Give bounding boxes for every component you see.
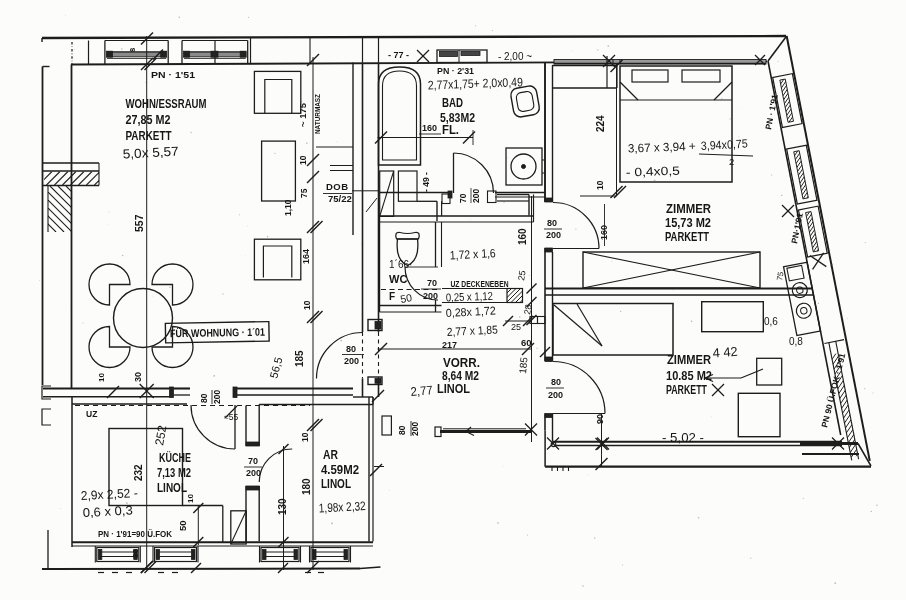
svg-text:75/22: 75/22 xyxy=(328,193,352,204)
svg-text:90: 90 xyxy=(595,414,605,424)
svg-text:3,94x0,75: 3,94x0,75 xyxy=(700,137,748,153)
svg-text:0,8: 0,8 xyxy=(789,336,803,347)
svg-text:164: 164 xyxy=(301,249,311,264)
svg-text:- 0,4x0,5: - 0,4x0,5 xyxy=(626,164,681,180)
svg-text:200: 200 xyxy=(546,230,561,240)
svg-text:FL.: FL. xyxy=(442,123,459,137)
svg-text:160: 160 xyxy=(422,123,437,133)
svg-text:WOHN/ESSRAUM: WOHN/ESSRAUM xyxy=(126,97,207,111)
svg-text:LINOL: LINOL xyxy=(157,481,187,495)
svg-text:10: 10 xyxy=(97,373,106,382)
svg-text:27,85 M2: 27,85 M2 xyxy=(126,113,171,127)
svg-text:LINOL: LINOL xyxy=(321,477,351,491)
svg-text:8,64 M2: 8,64 M2 xyxy=(442,369,479,383)
svg-text:ZIMMER: ZIMMER xyxy=(667,353,711,367)
svg-text:80: 80 xyxy=(199,393,209,403)
svg-text:ZIMMER: ZIMMER xyxy=(666,202,711,216)
svg-text:DOB: DOB xyxy=(326,181,349,192)
svg-text:2,77 x 1,85: 2,77 x 1,85 xyxy=(446,323,498,338)
svg-text:130: 130 xyxy=(277,498,288,515)
svg-text:PARKETT: PARKETT xyxy=(665,230,709,244)
svg-text:70: 70 xyxy=(248,456,258,466)
svg-text:FÜR WOHNUNG · 1´01: FÜR WOHNUNG · 1´01 xyxy=(170,326,265,340)
svg-text:PN · 1'51: PN · 1'51 xyxy=(151,70,195,80)
svg-text:200: 200 xyxy=(423,291,438,301)
svg-text:30: 30 xyxy=(131,549,140,558)
svg-text:2: 2 xyxy=(729,156,734,167)
svg-text:UZ: UZ xyxy=(86,409,97,419)
svg-text:30: 30 xyxy=(133,372,143,382)
svg-text:0,6 x 0,3: 0,6 x 0,3 xyxy=(82,503,133,520)
svg-text:80: 80 xyxy=(551,377,561,387)
svg-text:200: 200 xyxy=(212,390,222,404)
svg-text:75: 75 xyxy=(299,188,309,198)
svg-text:217: 217 xyxy=(442,340,457,350)
svg-text:10: 10 xyxy=(595,180,605,190)
svg-text:15,73 M2: 15,73 M2 xyxy=(665,216,711,230)
svg-text:185: 185 xyxy=(294,350,305,367)
svg-text:80: 80 xyxy=(346,344,356,354)
svg-text:3,67 x 3,94 +: 3,67 x 3,94 + xyxy=(628,139,696,155)
svg-text:10.85 M2: 10.85 M2 xyxy=(666,369,712,383)
svg-text:1´66·: 1´66· xyxy=(389,259,412,270)
svg-text:WC: WC xyxy=(389,273,407,285)
svg-text:- 5,02 -: - 5,02 - xyxy=(662,430,704,445)
svg-text:UZ DECKENEBEN: UZ DECKENEBEN xyxy=(451,279,509,289)
svg-text:BAD: BAD xyxy=(442,96,463,110)
svg-text:LINOL: LINOL xyxy=(437,382,470,396)
svg-text:70: 70 xyxy=(427,278,437,288)
svg-text:232: 232 xyxy=(133,464,144,481)
svg-text:5,0x 5,57: 5,0x 5,57 xyxy=(122,144,179,162)
svg-text:KÜCHE: KÜCHE xyxy=(159,450,191,465)
svg-text:~ 175: ~ 175 xyxy=(297,102,308,127)
svg-text:8: 8 xyxy=(128,48,137,52)
svg-text:60: 60 xyxy=(521,337,532,348)
svg-text:180: 180 xyxy=(301,478,312,495)
svg-text:185: 185 xyxy=(517,356,529,374)
svg-text:4 42: 4 42 xyxy=(712,344,738,361)
svg-text:160: 160 xyxy=(599,225,609,240)
svg-text:50: 50 xyxy=(399,291,413,305)
svg-text:80: 80 xyxy=(547,218,557,228)
svg-text:224: 224 xyxy=(595,115,606,132)
svg-text:PN · 2'31: PN · 2'31 xyxy=(437,66,474,76)
svg-text:- 49 -: - 49 - xyxy=(421,172,431,192)
svg-text:0,28x 1,72: 0,28x 1,72 xyxy=(445,304,496,319)
svg-text:28: 28 xyxy=(522,304,534,316)
svg-text:252: 252 xyxy=(152,424,169,446)
svg-text:AR: AR xyxy=(323,448,338,462)
svg-text:0,25 x 1,12: 0,25 x 1,12 xyxy=(446,290,493,304)
svg-text:1,72 x 1,6: 1,72 x 1,6 xyxy=(449,246,496,262)
svg-text:2,77x1,75+ 2,0x0,49: 2,77x1,75+ 2,0x0,49 xyxy=(428,75,523,92)
svg-text:200: 200 xyxy=(246,468,261,478)
svg-text:PARKETT: PARKETT xyxy=(666,383,707,397)
svg-text:50: 50 xyxy=(177,520,188,531)
svg-text:10: 10 xyxy=(298,155,308,165)
svg-text:PN · 1'91=90 Ü.FOK: PN · 1'91=90 Ü.FOK xyxy=(98,529,173,539)
svg-text:56,5: 56,5 xyxy=(267,356,284,380)
svg-text:2,9x 2,52 -: 2,9x 2,52 - xyxy=(80,486,138,503)
svg-text:200: 200 xyxy=(344,356,359,366)
svg-text:80: 80 xyxy=(397,425,407,435)
svg-text:4.59M2: 4.59M2 xyxy=(321,463,359,477)
svg-text:NATURMASZ: NATURMASZ xyxy=(313,94,322,134)
svg-text:7,13 M2: 7,13 M2 xyxy=(157,466,191,480)
svg-text:2,77: 2,77 xyxy=(410,383,433,399)
svg-text:0,6: 0,6 xyxy=(764,316,778,327)
svg-text:PARKETT: PARKETT xyxy=(126,129,172,143)
svg-text:25: 25 xyxy=(511,322,521,332)
svg-text:1,98x 2,32: 1,98x 2,32 xyxy=(318,499,366,515)
svg-text:1,10: 1,10 xyxy=(283,199,293,216)
svg-text:10: 10 xyxy=(302,300,312,310)
svg-text:25: 25 xyxy=(516,270,528,282)
svg-text:10: 10 xyxy=(186,494,195,503)
svg-text:10: 10 xyxy=(300,432,310,442)
svg-text:200: 200 xyxy=(548,390,563,400)
svg-text:200: 200 xyxy=(471,189,481,203)
svg-text:F: F xyxy=(389,291,395,302)
svg-text:- 2,00 ~: - 2,00 ~ xyxy=(498,50,532,62)
svg-text:200: 200 xyxy=(410,422,420,436)
svg-text:- 77 -: - 77 - xyxy=(388,50,409,60)
svg-text:557: 557 xyxy=(133,214,145,232)
svg-text:70: 70 xyxy=(458,193,468,203)
